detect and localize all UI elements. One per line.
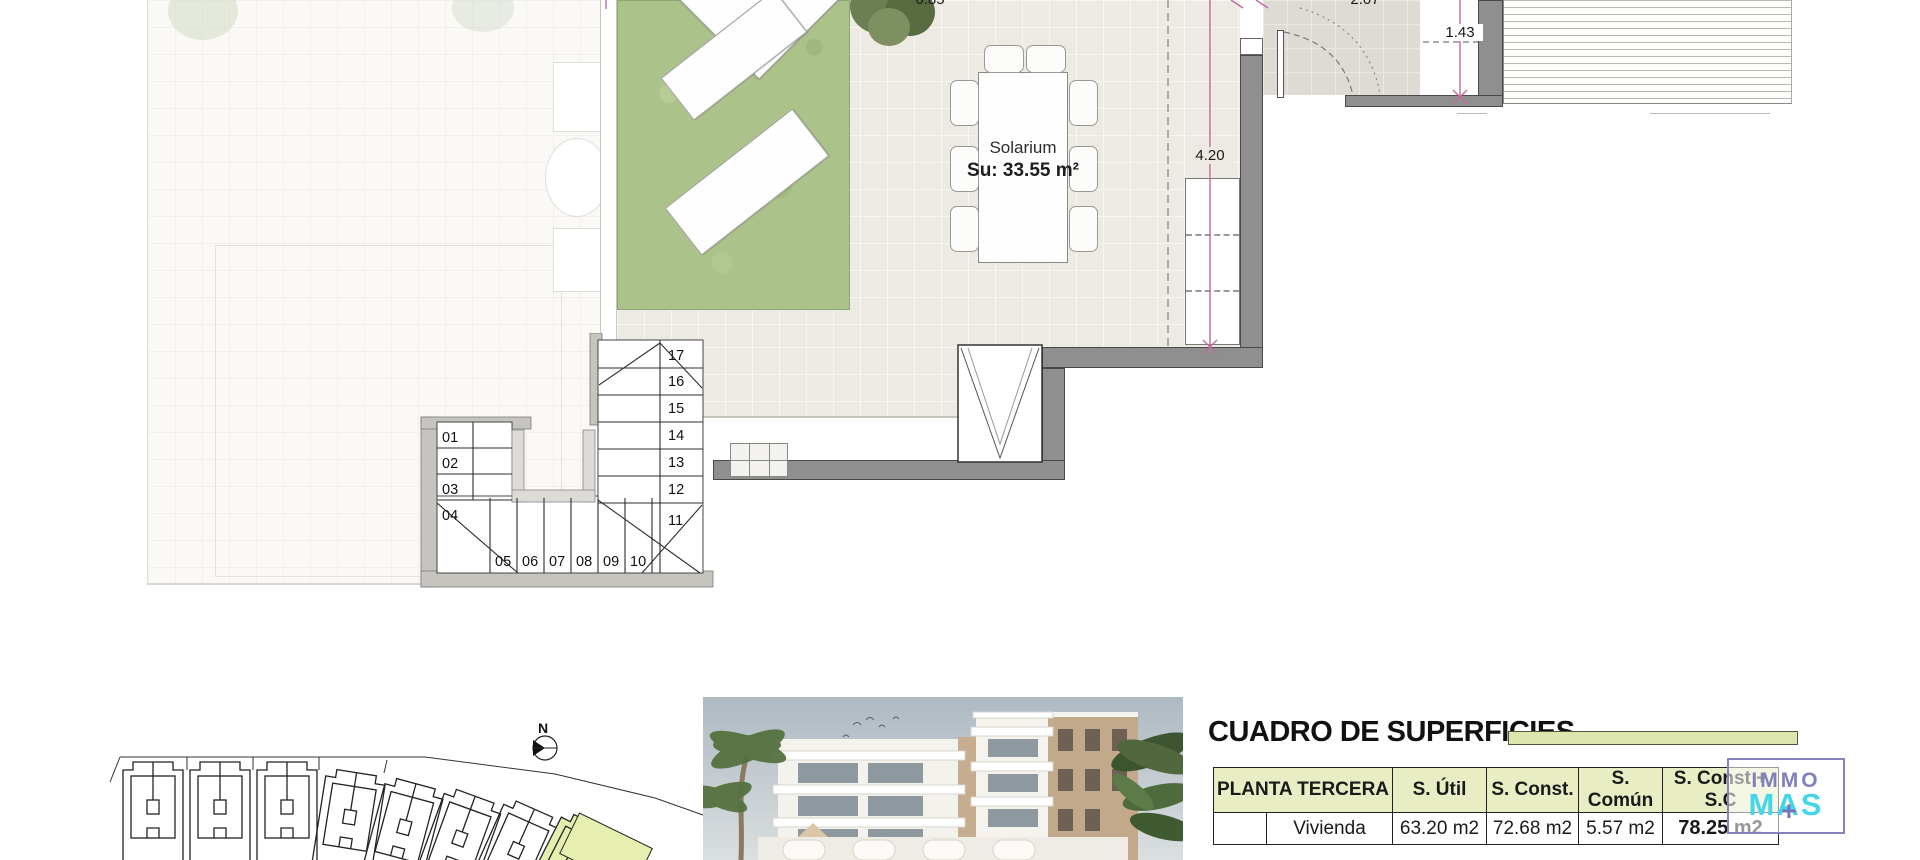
svg-text:11: 11	[668, 513, 683, 529]
svg-text:10: 10	[630, 554, 646, 570]
svg-text:04: 04	[442, 508, 458, 524]
surfaces-cell: 72.68 m2	[1487, 813, 1579, 845]
svg-text:09: 09	[603, 554, 619, 570]
svg-text:06: 06	[522, 554, 538, 570]
dimension-label: 1.43	[1437, 24, 1483, 41]
building-render-photo	[703, 697, 1183, 860]
dimension-overlay	[0, 0, 1920, 600]
floorplan-sheet: Solarium Su: 33.55 m²	[0, 0, 1920, 860]
svg-text:17: 17	[668, 348, 684, 364]
dimension-label-clipped: 6.85	[905, 0, 955, 8]
svg-text:02: 02	[442, 456, 458, 472]
dimension-label: 4.20	[1186, 147, 1234, 164]
surfaces-cell	[1214, 813, 1267, 845]
surfaces-cell: 5.57 m2	[1579, 813, 1663, 845]
surfaces-row-label: Vivienda	[1267, 813, 1393, 845]
svg-text:01: 01	[442, 430, 458, 446]
title-bar	[1508, 731, 1798, 745]
svg-text:16: 16	[668, 374, 684, 390]
surfaces-col-header: PLANTA TERCERA	[1214, 768, 1393, 813]
site-plan: N	[95, 650, 715, 860]
svg-text:13: 13	[668, 455, 684, 471]
svg-text:07: 07	[549, 554, 565, 570]
logo-plus-icon: +	[1781, 796, 1797, 827]
north-arrow: N	[533, 720, 557, 760]
surfaces-table: PLANTA TERCERAS. ÚtilS. Const.S. ComúnS.…	[1213, 767, 1779, 845]
surfaces-col-header: S. Const.	[1487, 768, 1579, 813]
dimension-label-clipped: 2.07	[1340, 0, 1390, 8]
surfaces-col-header: S. Útil	[1393, 768, 1487, 813]
svg-text:N: N	[538, 720, 548, 736]
staircase: 0102030405060708091017161514131211	[418, 333, 718, 595]
immo-mas-logo: IMMO MAS +	[1727, 758, 1845, 834]
svg-text:14: 14	[668, 428, 684, 444]
svg-text:15: 15	[668, 401, 684, 417]
surfaces-cell: 63.20 m2	[1393, 813, 1487, 845]
svg-text:05: 05	[495, 554, 511, 570]
svg-text:03: 03	[442, 482, 458, 498]
surfaces-col-header: S. Común	[1579, 768, 1663, 813]
svg-text:12: 12	[668, 482, 684, 498]
svg-text:08: 08	[576, 554, 592, 570]
